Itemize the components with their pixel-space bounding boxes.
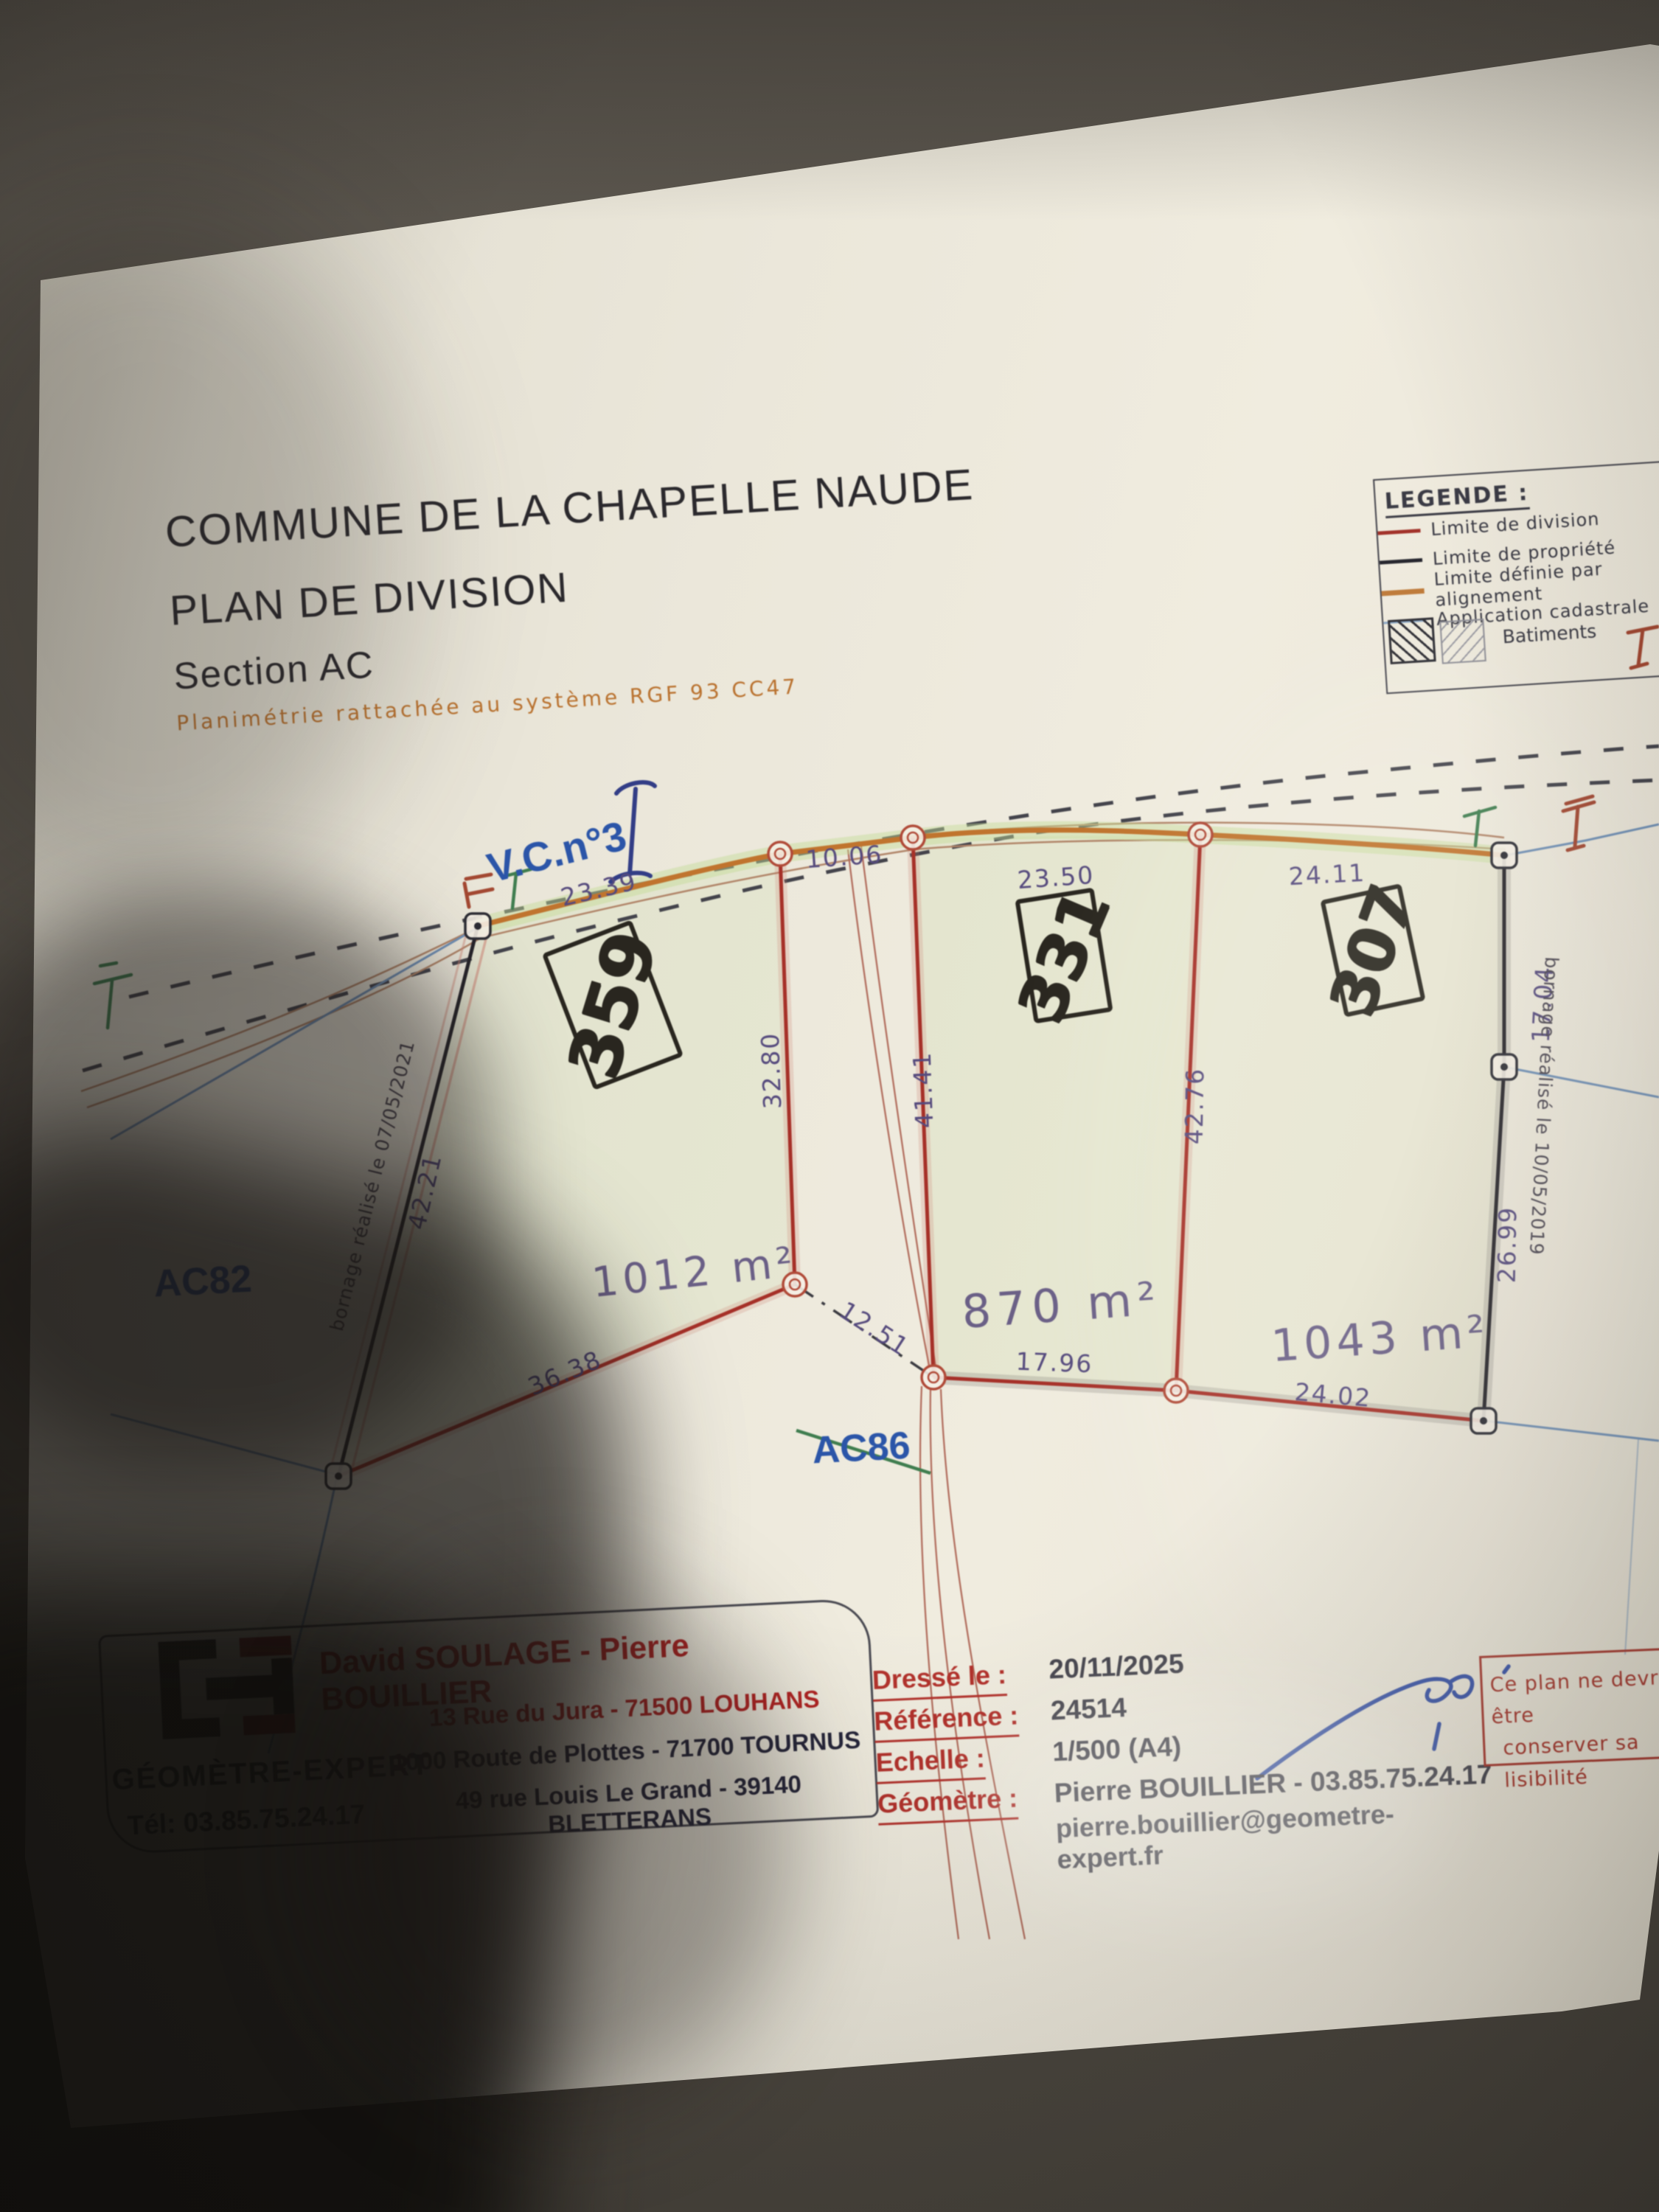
address-tournus: 1000 Route de Plottes - 71700 TOURNUS (386, 1725, 866, 1777)
neighbor-parcel-ac82: AC82 (153, 1257, 253, 1307)
label-echelle: Echelle : (875, 1742, 986, 1784)
parcel-number-359: 359 (552, 922, 674, 1088)
dim-road-gap: 10.06 (805, 840, 884, 874)
geometre-expert-logo-icon (159, 1635, 304, 1745)
dim-right-359: 32.80 (756, 1032, 787, 1110)
dim-bottom-331: 17.96 (1015, 1347, 1093, 1379)
dim-left-331: 41.41 (908, 1051, 939, 1129)
value-reference: 24514 (1050, 1692, 1127, 1726)
dim-front-307: 24.11 (1288, 858, 1366, 891)
dim-right-lower-307: 26.99 (1492, 1206, 1523, 1283)
label-dresse-le: Dressé le : (872, 1659, 1007, 1702)
parcel-number-box-307: 307 (1320, 883, 1425, 1018)
phone-number: Tél: 03.85.75.24.17 (127, 1799, 366, 1842)
parcel-number-307: 307 (1315, 876, 1430, 1026)
brand-geometre-expert: GÉOMÈTRE-EXPERT (111, 1748, 431, 1797)
label-geometre: Géomètre : (877, 1783, 1018, 1826)
notice-line2: conserver sa lisibilité (1492, 1723, 1659, 1797)
parcel-number-box-331: 331 (1015, 888, 1113, 1024)
cadastral-map (0, 0, 1659, 2212)
neighbor-parcel-ac86: AC86 (811, 1424, 911, 1473)
notice-line1: Ce plan ne devra être (1489, 1660, 1659, 1733)
label-reference: Référence : (873, 1700, 1019, 1743)
value-dresse-le: 20/11/2025 (1048, 1649, 1185, 1686)
photo-of-plan: COMMUNE DE LA CHAPELLE NAUDE PLAN DE DIV… (0, 0, 1659, 2212)
dim-right-331: 42.76 (1180, 1067, 1210, 1144)
value-echelle: 1/500 (A4) (1051, 1731, 1181, 1768)
legibility-notice-box: Ce plan ne devra être conserver sa lisib… (1479, 1646, 1659, 1767)
surveyor-title-block: David SOULAGE - Pierre BOUILLIER 13 Rue … (98, 1598, 879, 1855)
